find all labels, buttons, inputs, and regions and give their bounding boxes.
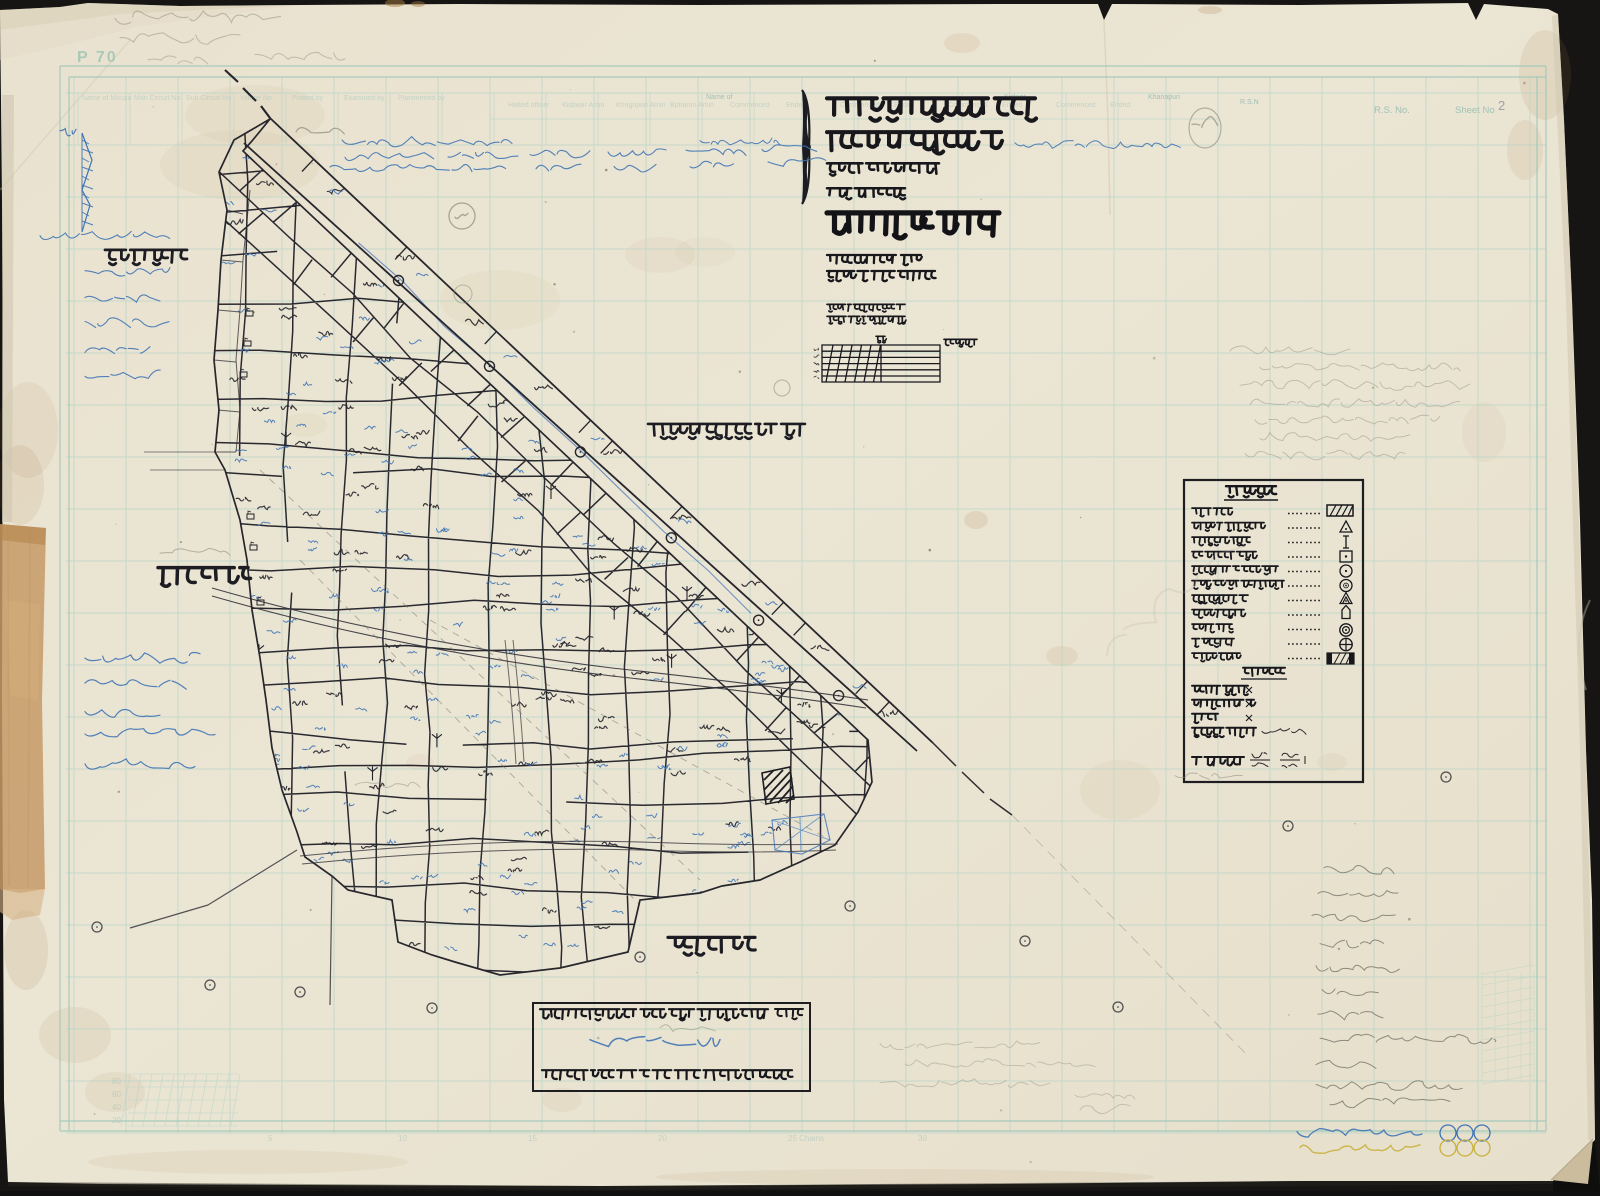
svg-text:R.S.N: R.S.N — [1240, 99, 1259, 106]
svg-text:P 70: P 70 — [77, 49, 118, 66]
svg-text:80: 80 — [112, 1077, 121, 1086]
svg-text:R.S. No.: R.S. No. — [1374, 105, 1410, 116]
svg-text:Kisbwar Amin: Kisbwar Amin — [562, 102, 605, 109]
svg-text:10: 10 — [398, 1134, 407, 1143]
svg-text:Village No.: Village No. — [240, 95, 274, 102]
svg-text:Commenced: Commenced — [1056, 102, 1096, 109]
svg-text:Hatted officer: Hatted officer — [508, 102, 550, 109]
svg-text:5: 5 — [268, 1134, 273, 1143]
svg-text:Ended: Ended — [1110, 102, 1130, 109]
svg-text:Sheet No: Sheet No — [1455, 105, 1495, 116]
svg-text:Bpharun Amin: Bpharun Amin — [670, 102, 714, 109]
svg-text:Planimetred by: Planimetred by — [398, 95, 445, 102]
svg-text:Khanapuri: Khanapuri — [1148, 94, 1180, 101]
svg-text:15: 15 — [528, 1134, 537, 1143]
svg-text:Name of: Name of — [706, 94, 733, 101]
svg-text:Khngopuri Amin: Khngopuri Amin — [616, 102, 666, 109]
svg-text:Examined by: Examined by — [344, 95, 385, 102]
svg-text:Name of Mouza: Name of Mouza — [82, 95, 132, 102]
svg-text:Commenced: Commenced — [730, 102, 770, 109]
svg-text:Man Circuit No.: Man Circuit No. — [134, 95, 182, 102]
svg-text:25 Chains: 25 Chains — [788, 1134, 824, 1143]
svg-text:30: 30 — [918, 1134, 927, 1143]
svg-text:2: 2 — [1498, 98, 1505, 113]
svg-text:Sub Circuit No.: Sub Circuit No. — [186, 95, 233, 102]
svg-text:20: 20 — [112, 1116, 121, 1125]
svg-text:20: 20 — [658, 1134, 667, 1143]
svg-text:40: 40 — [112, 1103, 121, 1112]
svg-text:Plotted by: Plotted by — [292, 95, 324, 102]
svg-text:60: 60 — [112, 1090, 121, 1099]
